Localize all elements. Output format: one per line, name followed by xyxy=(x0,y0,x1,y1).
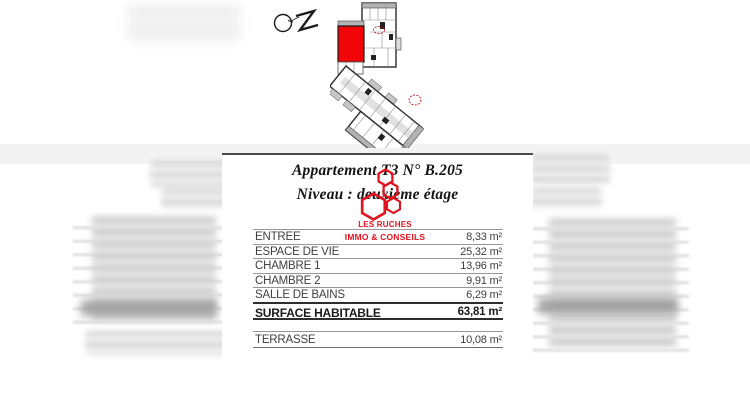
floor-plan xyxy=(330,0,465,148)
room-label: TERRASSE xyxy=(255,334,315,346)
room-area: 10,08 m² xyxy=(460,334,502,346)
redacted-bold-band xyxy=(538,298,678,314)
table-row: ESPACE DE VIE 25,32 m² xyxy=(253,244,503,259)
redacted-text-right-1 xyxy=(530,155,610,185)
highlighted-unit xyxy=(338,26,364,62)
table-row: SALLE DE BAINS 6,29 m² xyxy=(253,287,503,302)
agency-honeycomb-logo-icon xyxy=(358,167,404,225)
redacted-block-top-left xyxy=(128,7,240,43)
table-row: CHAMBRE 1 13,96 m² xyxy=(253,258,503,273)
plan-annotation-circle xyxy=(409,95,421,105)
agency-name: LES RUCHES xyxy=(237,220,533,229)
room-label: CHAMBRE 2 xyxy=(255,275,320,287)
redacted-text-right-2 xyxy=(530,188,602,209)
total-label: SURFACE HABITABLE xyxy=(255,306,381,320)
redacted-row-left-bottom xyxy=(85,331,240,355)
room-area: 13,96 m² xyxy=(460,260,502,272)
redacted-table-left xyxy=(73,215,228,328)
areas-table: ENTREE 8,33 m² ESPACE DE VIE 25,32 m² CH… xyxy=(253,229,503,348)
room-area: 9,91 m² xyxy=(466,275,502,287)
redacted-bold-band xyxy=(81,300,217,316)
table-row: CHAMBRE 2 9,91 m² xyxy=(253,273,503,288)
room-area: 25,32 m² xyxy=(460,246,502,258)
listing-image: Appartement T3 N° B.205 Niveau : deuxièm… xyxy=(0,0,750,420)
redacted-table-right xyxy=(530,216,689,356)
north-compass-icon xyxy=(272,6,324,38)
redacted-smudge xyxy=(549,219,676,349)
table-spacer xyxy=(253,320,503,331)
agency-tagline: IMMO & CONSEILS xyxy=(237,232,533,242)
terrace-row: TERRASSE 10,08 m² xyxy=(253,331,503,348)
total-area: 63,81 m² xyxy=(458,306,502,318)
total-surface-row: SURFACE HABITABLE 63,81 m² xyxy=(253,302,503,320)
room-label: SALLE DE BAINS xyxy=(255,289,345,301)
room-label: CHAMBRE 1 xyxy=(255,260,320,272)
balcony-strip xyxy=(338,21,364,26)
room-area: 6,29 m² xyxy=(466,289,502,301)
listing-document: Appartement T3 N° B.205 Niveau : deuxièm… xyxy=(222,153,533,420)
room-label: ESPACE DE VIE xyxy=(255,246,339,258)
